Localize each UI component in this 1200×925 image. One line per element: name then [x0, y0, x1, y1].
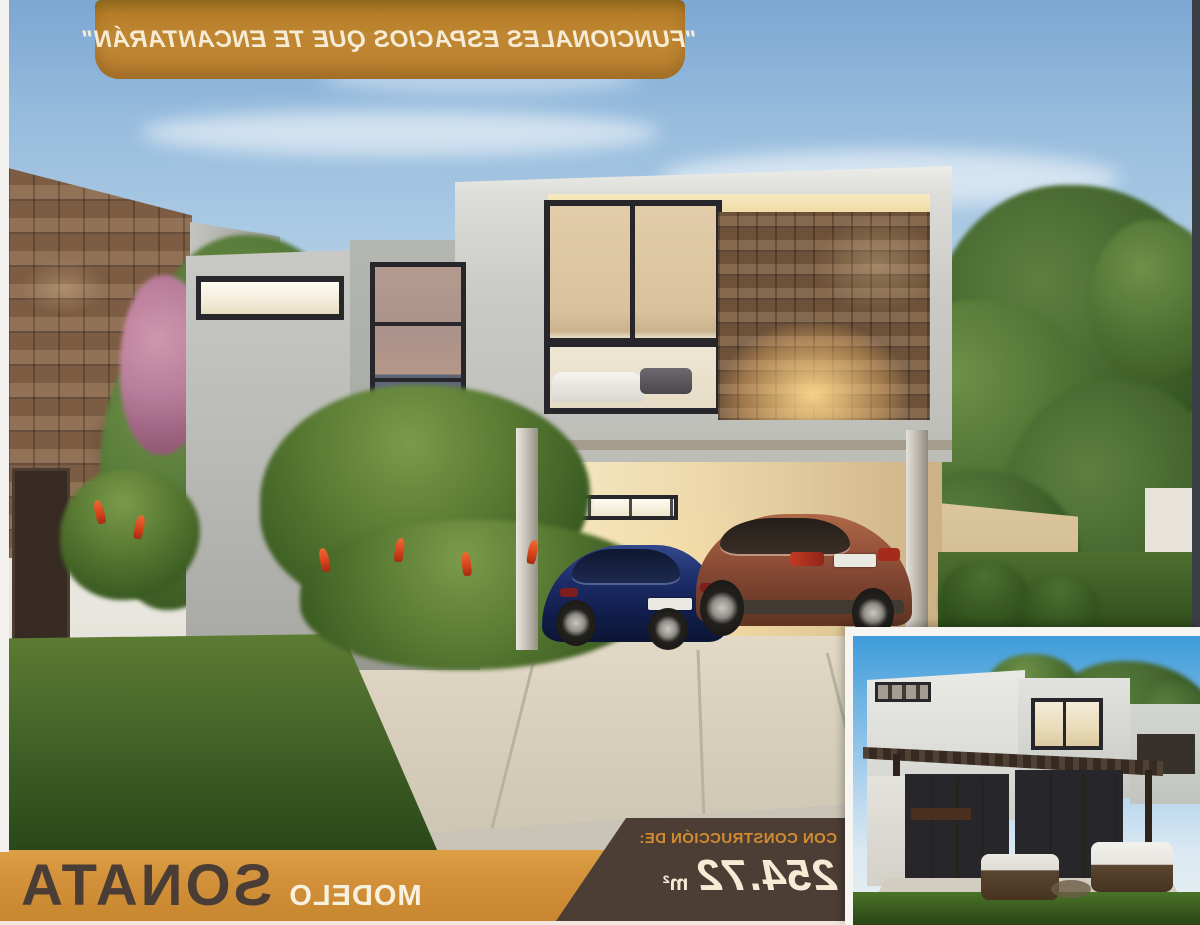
- inset-left-pier: [867, 776, 907, 886]
- suv-wheel: [700, 580, 744, 636]
- blue-car-wheel: [556, 600, 596, 646]
- blue-car-wheel: [648, 608, 688, 650]
- inset-kitchen-cabinets: [911, 808, 971, 820]
- area-value: 254.72: [696, 851, 837, 901]
- blue-car-taillight: [560, 588, 578, 597]
- bed-duvet: [552, 372, 644, 402]
- inset-sofa: [981, 854, 1059, 900]
- flyer-root: "FUNCIONALES ESPACIOS QUE TE ENCANTARÁN"…: [0, 0, 1200, 925]
- stone-accent-wall: [718, 212, 930, 420]
- bottom-edge-strip: [0, 921, 847, 925]
- carport-column: [516, 428, 538, 650]
- suv-taillight: [790, 552, 824, 566]
- bedroom-window-mullion: [630, 206, 635, 344]
- inset-window-mullion: [1063, 702, 1066, 746]
- model-label: MODELO: [288, 880, 421, 913]
- right-dark-border: [1192, 0, 1200, 629]
- suv-glass: [720, 518, 850, 554]
- model-name: SONATA: [18, 855, 272, 917]
- top-banner: "FUNCIONALES ESPACIOS QUE TE ENCANTARÁN": [95, 0, 685, 79]
- blue-car-glass: [572, 549, 680, 583]
- inset-window-glass: [1035, 702, 1099, 746]
- inset-slit-glass: [878, 685, 928, 699]
- bed-pillows: [640, 368, 692, 394]
- tree: [1090, 220, 1200, 380]
- suv-plate: [834, 554, 876, 567]
- tall-window-mullion: [375, 322, 461, 326]
- neighbor-garage-door: [12, 468, 70, 652]
- inset-photo: [845, 627, 1200, 925]
- inset-pergola-post: [1145, 770, 1152, 848]
- cloud: [140, 110, 660, 156]
- inset-scene: [853, 636, 1200, 925]
- bedroom-window-rail: [550, 338, 716, 347]
- slit-window-glass: [201, 282, 339, 314]
- construction-inner: CON CONSTRUCCIÓN DE: 254.72 m²: [602, 830, 837, 901]
- construction-label: CON CONSTRUCCIÓN DE:: [602, 830, 837, 847]
- banner-quote: "FUNCIONALES ESPACIOS QUE TE ENCANTARÁN": [82, 26, 697, 54]
- left-white-border: [0, 0, 9, 852]
- area-unit: m²: [663, 872, 689, 896]
- tall-window-mullion: [375, 378, 461, 382]
- suv-taillight: [878, 548, 900, 561]
- inset-round-table: [1051, 880, 1091, 898]
- inset-sofa: [1091, 842, 1173, 892]
- model-group: MODELO SONATA: [18, 855, 568, 917]
